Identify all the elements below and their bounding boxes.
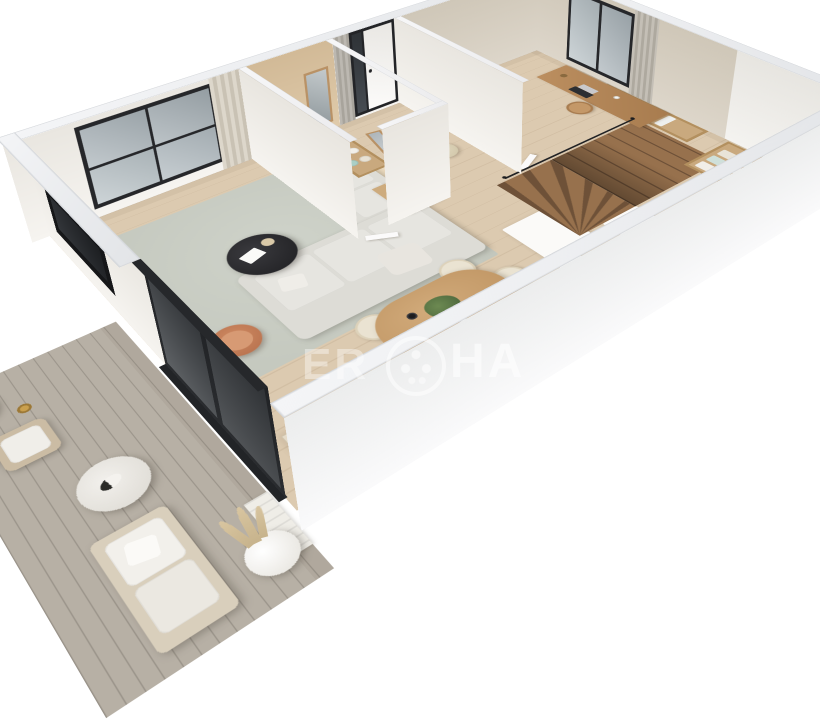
window-glass	[569, 0, 600, 69]
perspective-wrap	[0, 0, 820, 727]
office-curtain-grey	[628, 10, 659, 105]
window-glass	[598, 5, 632, 84]
floorplan-render: ER HA	[0, 0, 820, 727]
